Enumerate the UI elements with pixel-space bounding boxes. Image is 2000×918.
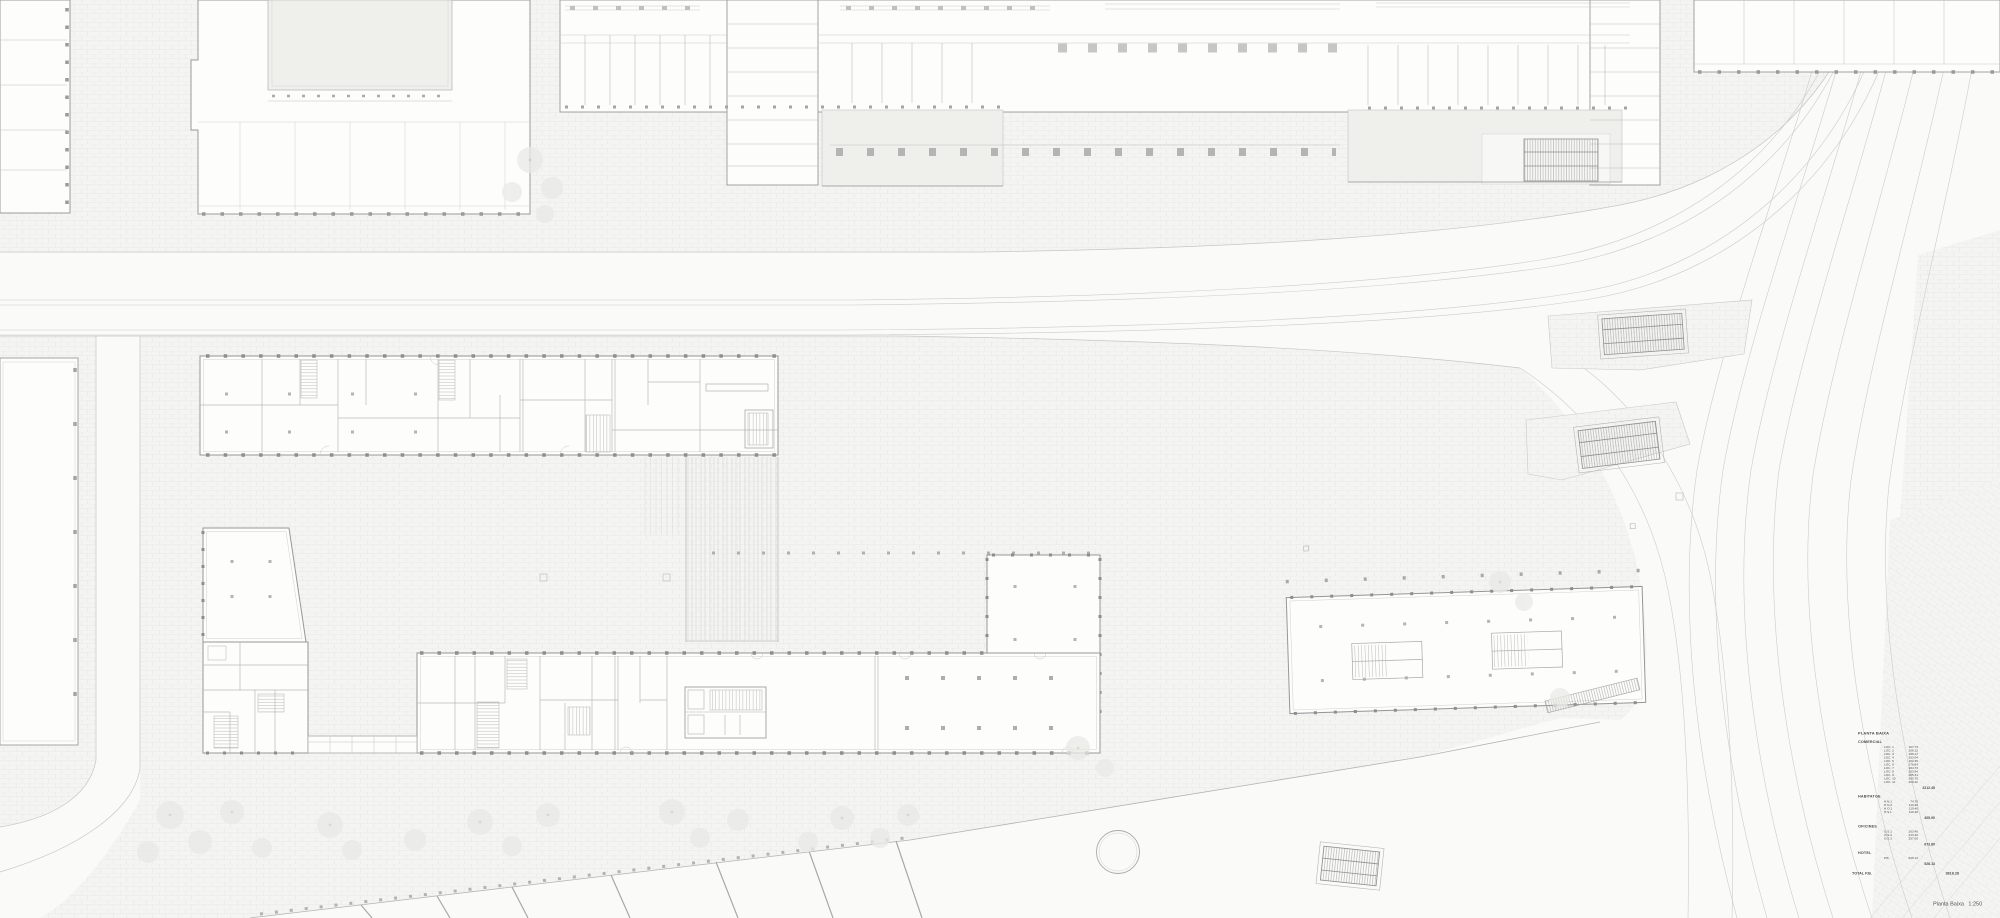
- service-block: [203, 642, 308, 753]
- legend-total: TOTAL P.B. 3818.28: [1852, 871, 1959, 876]
- site-plan-sheet: PLANTA BAIXA COMERCIAL LOC. 1107.73 LOC.…: [0, 0, 2000, 918]
- roundabout-circle: [1097, 831, 1140, 874]
- building-west-lot: [0, 358, 78, 745]
- legend-section-oficines: OFICINES O.S.1203.40 O.S.2213.40 O.S.325…: [1852, 824, 1972, 847]
- legend-row: P.B.526.13: [1852, 857, 1918, 861]
- metro-ramp-bottom: [1316, 842, 1384, 890]
- context-building-block-a: [191, 0, 530, 214]
- courtyard-west: [822, 110, 1003, 186]
- caption-name: Planta Baixa: [1933, 901, 1964, 907]
- legend-subtotal: 526.13: [1852, 863, 1935, 867]
- legend-section-comercial: COMERCIAL LOC. 1107.73 LOC. 2206.12 LOC.…: [1852, 740, 1972, 791]
- context-building-west-strip: [0, 0, 70, 213]
- legend-row: LOC. 11260.42: [1852, 781, 1918, 785]
- trapezoid-block: [203, 528, 306, 642]
- legend-subtotal: 405.90: [1852, 817, 1935, 821]
- site-plan-canvas: [0, 0, 2000, 918]
- context-building-northeast: [1694, 0, 2000, 72]
- legend-panel: PLANTA BAIXA COMERCIAL LOC. 1107.73 LOC.…: [1852, 731, 1972, 876]
- legend-section-habitatge: HABITATGE H.N.174.70 H.N.2110.40 H.O.111…: [1852, 794, 1972, 820]
- caption-scale: 1:250: [1968, 901, 1982, 907]
- legend-subtotal: 2212.45: [1852, 787, 1935, 791]
- central-core: [685, 687, 766, 738]
- drawing-caption: Planta Baixa1:250: [1933, 901, 1982, 907]
- legend-row: O.S.3257.00: [1852, 837, 1918, 841]
- link-corridor: [308, 736, 417, 753]
- legend-row: H.S.1110.40: [1852, 811, 1918, 815]
- legend-subtotal: 673.80: [1852, 843, 1935, 847]
- legend-title: PLANTA BAIXA: [1858, 731, 1972, 736]
- metro-ramp-courtyard: [1524, 139, 1598, 181]
- legend-section-hotel: HOTEL P.B.526.13 526.13: [1852, 851, 1972, 867]
- building-main-bar: [200, 356, 778, 455]
